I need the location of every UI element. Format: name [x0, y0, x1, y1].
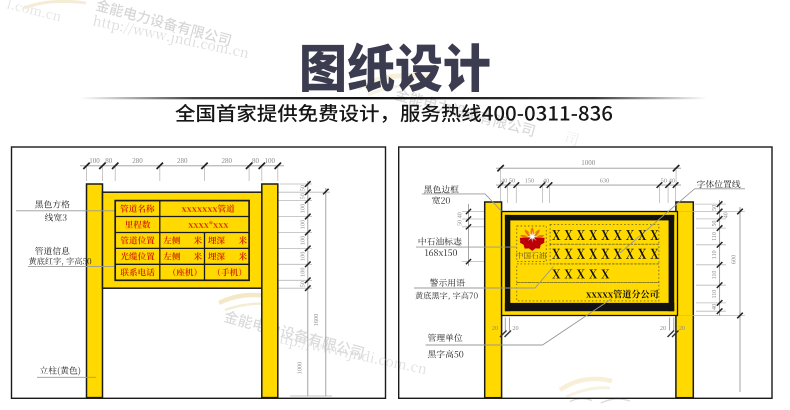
svg-text:50: 50 [712, 221, 718, 227]
svg-text:100: 100 [299, 204, 306, 213]
svg-text:1000: 1000 [581, 159, 596, 167]
svg-text:100: 100 [89, 157, 100, 165]
svg-text:280: 280 [222, 157, 233, 165]
svg-text:40: 40 [724, 212, 730, 218]
svg-text:1000: 1000 [296, 362, 303, 375]
svg-text:40: 40 [458, 212, 464, 218]
svg-text:80: 80 [252, 157, 260, 165]
svg-text:50: 50 [661, 178, 667, 185]
svg-text:1600: 1600 [313, 314, 320, 327]
svg-text:20: 20 [492, 325, 498, 332]
svg-text:630: 630 [600, 178, 609, 185]
svg-text:40: 40 [501, 178, 507, 185]
svg-text:40: 40 [712, 304, 718, 310]
svg-text:280: 280 [177, 157, 188, 165]
svg-text:50: 50 [712, 205, 718, 211]
svg-text:600: 600 [731, 255, 738, 264]
svg-text:100: 100 [265, 157, 276, 165]
svg-text:50: 50 [458, 220, 464, 226]
svg-text:20: 20 [679, 325, 685, 332]
svg-text:110: 110 [712, 250, 718, 259]
svg-text:110: 110 [712, 290, 718, 299]
svg-text:280: 280 [132, 157, 143, 165]
svg-text:40: 40 [543, 178, 549, 185]
svg-text:100: 100 [299, 252, 306, 261]
svg-text:110: 110 [712, 232, 718, 241]
svg-text:50: 50 [299, 193, 306, 199]
svg-text:110: 110 [712, 271, 718, 280]
svg-text:80: 80 [105, 157, 113, 165]
svg-text:100: 100 [299, 267, 306, 276]
svg-text:50: 50 [509, 178, 515, 185]
svg-text:50: 50 [299, 185, 306, 191]
svg-text:100: 100 [299, 236, 306, 245]
svg-text:100: 100 [299, 220, 306, 229]
svg-text:150: 150 [525, 178, 534, 185]
svg-text:20: 20 [660, 325, 666, 332]
svg-text:20: 20 [512, 325, 518, 332]
svg-text:40: 40 [669, 178, 675, 185]
svg-text:50: 50 [299, 281, 306, 287]
